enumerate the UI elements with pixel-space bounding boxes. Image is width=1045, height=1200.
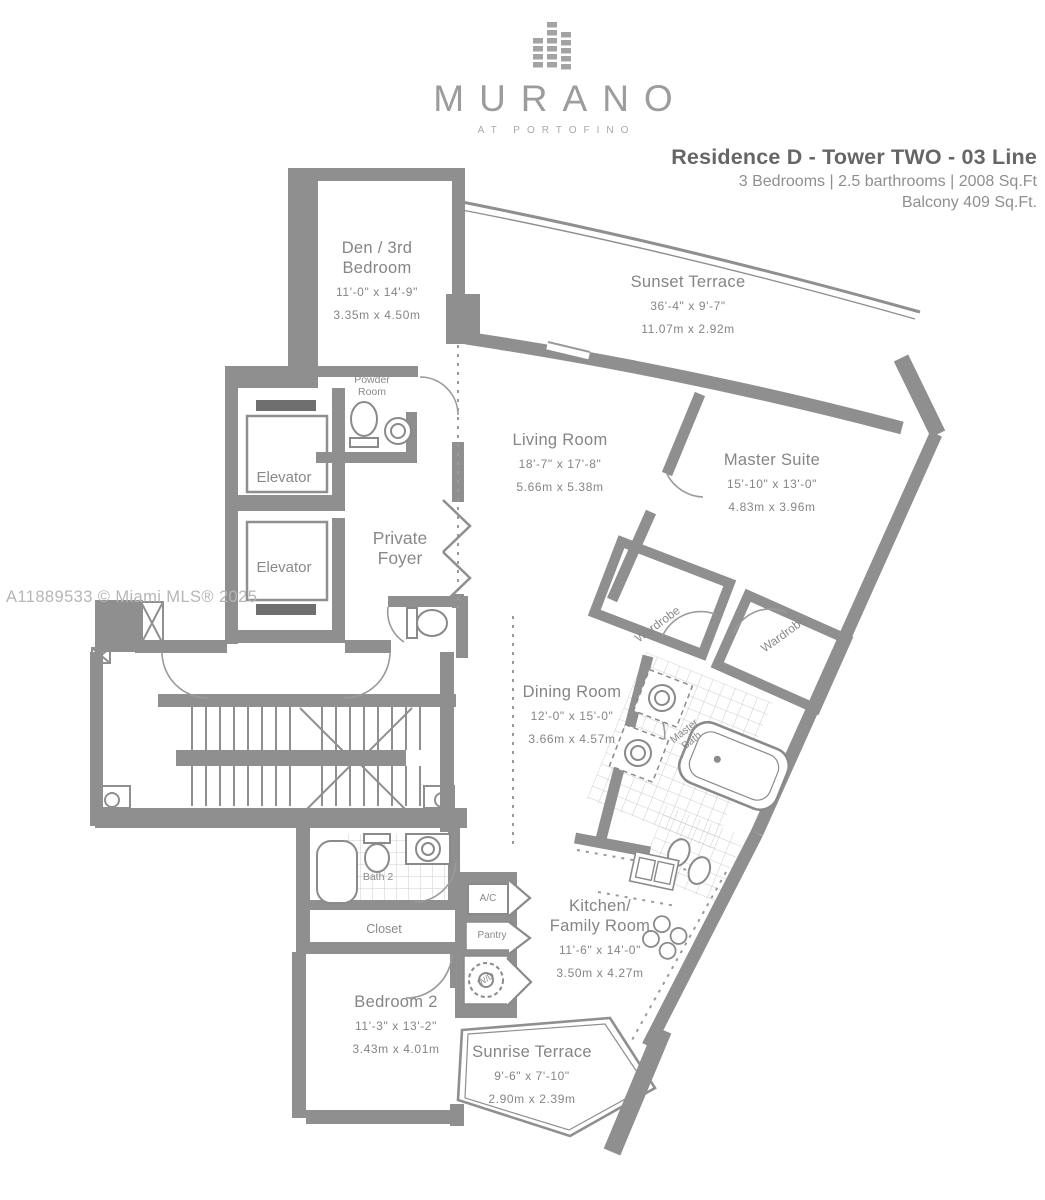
- room-dims-m: 3.50m x 4.27m: [520, 966, 680, 980]
- room-dims-ft: 11'-6" x 14'-0": [520, 943, 680, 957]
- room-dims-ft: 36'-4" x 9'-7": [583, 299, 793, 313]
- room-name: Sunrise Terrace: [442, 1042, 622, 1062]
- room-label-sunset-terrace: Sunset Terrace 36'-4" x 9'-7" 11.07m x 2…: [583, 272, 793, 336]
- room-dims-m: 3.35m x 4.50m: [292, 308, 462, 322]
- residence-title: Residence D - Tower TWO - 03 Line: [671, 145, 1037, 170]
- room-dims-ft: 12'-0" x 15'-0": [492, 709, 652, 723]
- room-dims-ft: 9'-6" x 7'-10": [442, 1069, 622, 1083]
- room-name: Den / 3rd Bedroom: [292, 238, 462, 278]
- mls-watermark: A11889533 © Miami MLS® 2025: [6, 588, 257, 607]
- foyer-door-chevrons: [443, 500, 470, 604]
- room-name: Bedroom 2: [316, 992, 476, 1012]
- room-dims-m: 4.83m x 3.96m: [677, 500, 867, 514]
- terrace-door: [548, 342, 590, 352]
- toilet-icon: [407, 608, 447, 638]
- sink-icon: [406, 834, 450, 864]
- room-dims-m: 5.66m x 5.38m: [465, 480, 655, 494]
- room-label-master-suite: Master Suite 15'-10" x 13'-0" 4.83m x 3.…: [677, 450, 867, 514]
- room-label-dining-room: Dining Room 12'-0" x 15'-0" 3.66m x 4.57…: [492, 682, 652, 746]
- room-name: Living Room: [465, 430, 655, 450]
- label-powder-room: Powder Room: [343, 374, 401, 398]
- room-label-kitchen: Kitchen/ Family Room 11'-6" x 14'-0" 3.5…: [520, 896, 680, 980]
- room-dims-ft: 18'-7" x 17'-8": [465, 457, 655, 471]
- room-name: Kitchen/ Family Room: [520, 896, 680, 936]
- room-dims-ft: 11'-3" x 13'-2": [316, 1019, 476, 1033]
- logo-text: MURANO: [383, 78, 723, 120]
- room-dims-ft: 11'-0" x 14'-9": [292, 285, 462, 299]
- room-dims-m: 3.66m x 4.57m: [492, 732, 652, 746]
- room-name: Dining Room: [492, 682, 652, 702]
- toilet-icon: [364, 834, 390, 872]
- residence-subtitle-1: 3 Bedrooms | 2.5 barthrooms | 2008 Sq.Ft: [671, 173, 1037, 191]
- label-private-foyer: Private Foyer: [360, 528, 440, 568]
- room-dims-m: 2.90m x 2.39m: [442, 1092, 622, 1106]
- label-pantry: Pantry: [478, 930, 507, 942]
- floorplan-page: MURANO AT PORTOFINO Residence D - Tower …: [0, 0, 1045, 1200]
- logo-subtext: AT PORTOFINO: [383, 125, 723, 136]
- label-elevator-2: Elevator: [256, 559, 311, 576]
- residence-subtitle-2: Balcony 409 Sq.Ft.: [671, 194, 1037, 212]
- room-name: Sunset Terrace: [583, 272, 793, 292]
- label-ac: A/C: [480, 893, 497, 905]
- room-label-den: Den / 3rd Bedroom 11'-0" x 14'-9" 3.35m …: [292, 238, 462, 322]
- building-logo-icon: [531, 20, 575, 74]
- room-dims-ft: 15'-10" x 13'-0": [677, 477, 867, 491]
- room-label-living-room: Living Room 18'-7" x 17'-8" 5.66m x 5.38…: [465, 430, 655, 494]
- room-dims-m: 11.07m x 2.92m: [583, 322, 793, 336]
- room-label-sunrise-terrace: Sunrise Terrace 9'-6" x 7'-10" 2.90m x 2…: [442, 1042, 622, 1106]
- label-elevator-1: Elevator: [256, 469, 311, 486]
- label-closet: Closet: [366, 922, 401, 936]
- murano-logo: MURANO AT PORTOFINO: [383, 20, 723, 136]
- bathtub-icon: [317, 841, 357, 903]
- toilet-icon: [350, 402, 378, 447]
- label-bath-2: Bath 2: [363, 871, 393, 883]
- sink-icon: [385, 418, 411, 444]
- room-name: Master Suite: [677, 450, 867, 470]
- title-block: Residence D - Tower TWO - 03 Line 3 Bedr…: [671, 145, 1037, 212]
